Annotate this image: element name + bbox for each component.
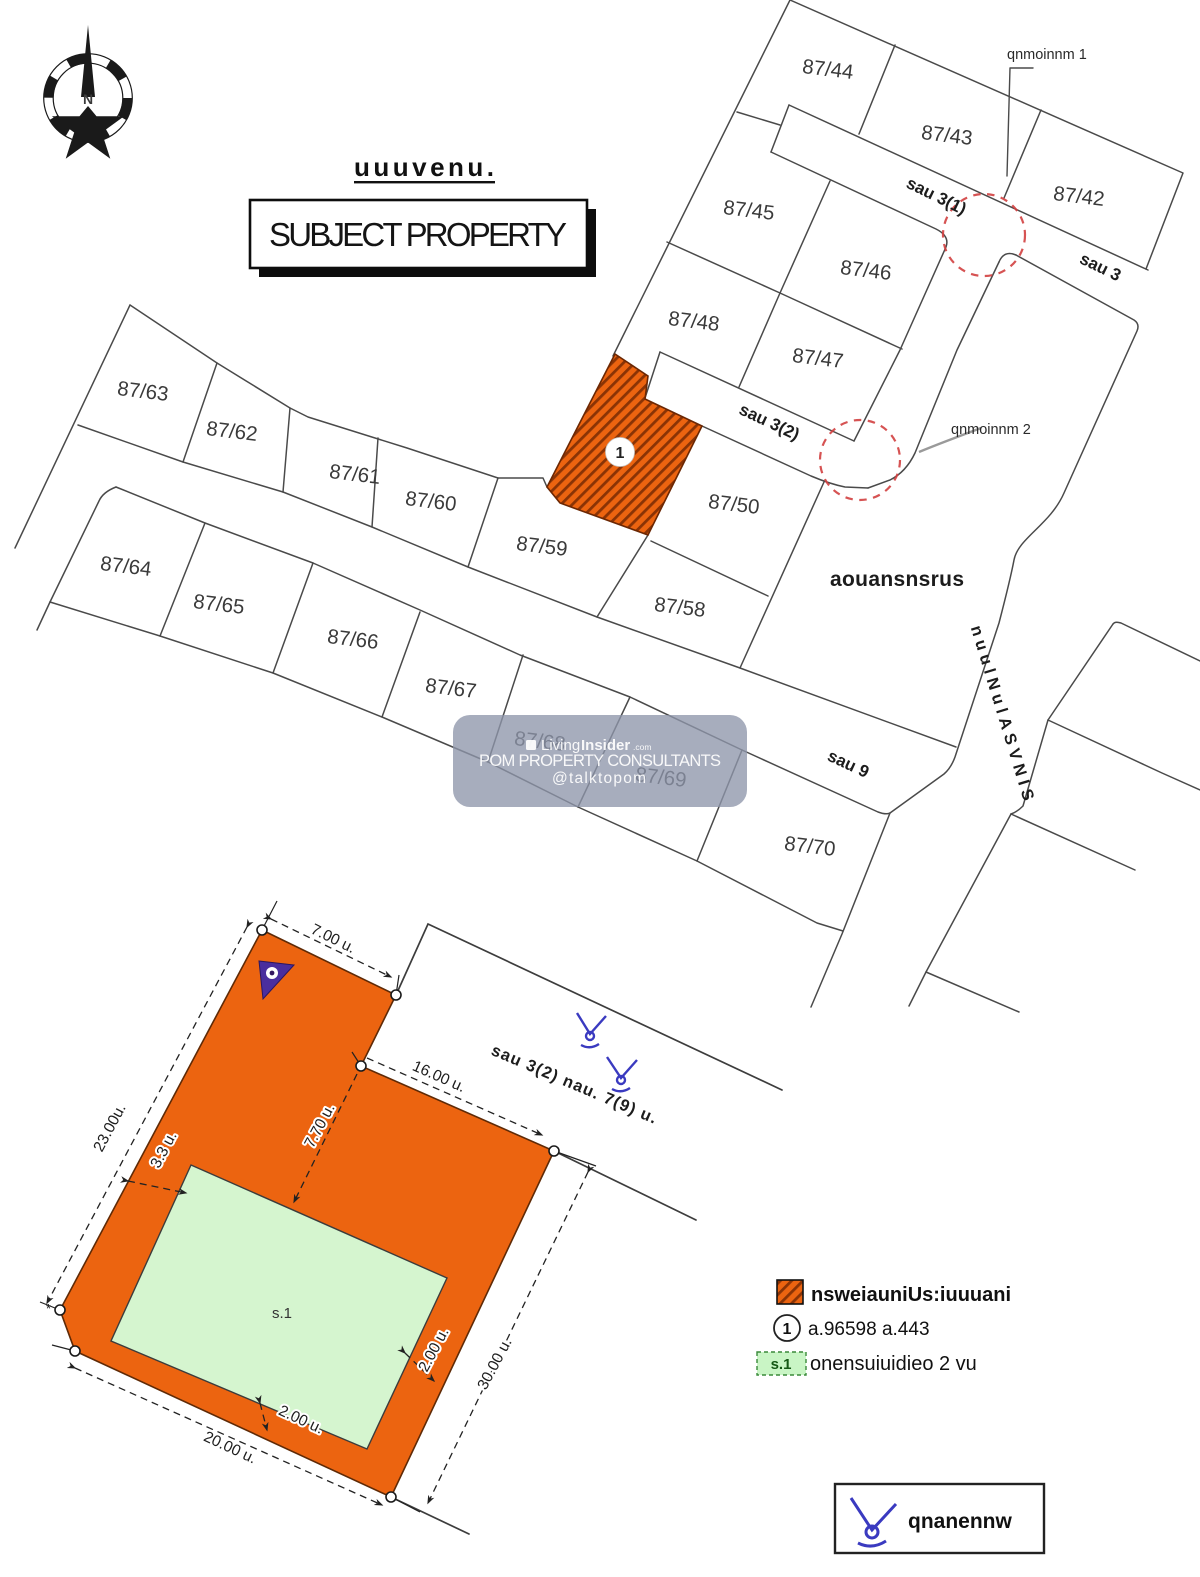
svg-text:87/61: 87/61 bbox=[328, 460, 382, 489]
svg-text:s.1: s.1 bbox=[771, 1356, 792, 1373]
svg-text:*: * bbox=[46, 1301, 51, 1316]
svg-text:87/48: 87/48 bbox=[667, 307, 721, 336]
svg-text:30.00 u.: 30.00 u. bbox=[474, 1335, 515, 1392]
svg-text:87/65: 87/65 bbox=[192, 590, 246, 619]
svg-text:87/66: 87/66 bbox=[326, 625, 380, 654]
svg-text:a.96598 a.443: a.96598 a.443 bbox=[808, 1319, 930, 1340]
svg-text:onensuiuidieo 2 vu: onensuiuidieo 2 vu bbox=[810, 1353, 977, 1375]
svg-text:1: 1 bbox=[616, 445, 625, 462]
svg-text:qnmoinnm 2: qnmoinnm 2 bbox=[951, 422, 1031, 438]
svg-text:1: 1 bbox=[783, 1321, 792, 1338]
svg-text:sau 3(2) nau. 7(9) u.: sau 3(2) nau. 7(9) u. bbox=[489, 1041, 660, 1127]
svg-text:87/58: 87/58 bbox=[653, 593, 707, 622]
svg-text:uuuvenu.: uuuvenu. bbox=[354, 152, 494, 182]
svg-text:POM PROPERTY CONSULTANTS: POM PROPERTY CONSULTANTS bbox=[479, 752, 721, 770]
svg-text:sau 3(2): sau 3(2) bbox=[736, 400, 802, 444]
svg-text:87/64: 87/64 bbox=[99, 552, 153, 581]
svg-text:20.00 u.: 20.00 u. bbox=[201, 1428, 259, 1467]
svg-text:s.1: s.1 bbox=[272, 1305, 292, 1322]
svg-text:87/60: 87/60 bbox=[404, 487, 458, 516]
svg-text:sau 9: sau 9 bbox=[825, 746, 872, 782]
svg-text:87/43: 87/43 bbox=[920, 121, 974, 150]
svg-text:SUBJECT PROPERTY: SUBJECT PROPERTY bbox=[269, 216, 567, 253]
svg-text:7.00 u.: 7.00 u. bbox=[308, 921, 358, 957]
svg-text:87/50: 87/50 bbox=[707, 490, 761, 519]
svg-text:nsweiauniUs:iuuuani: nsweiauniUs:iuuuani bbox=[811, 1284, 1011, 1306]
svg-text:.com: .com bbox=[633, 742, 651, 752]
svg-text:87/45: 87/45 bbox=[722, 196, 776, 225]
svg-text:aouansnsrus: aouansnsrus bbox=[830, 568, 964, 591]
svg-text:87/46: 87/46 bbox=[839, 256, 893, 285]
svg-text:87/59: 87/59 bbox=[515, 532, 569, 561]
svg-text:qnanennw: qnanennw bbox=[908, 1510, 1012, 1533]
svg-text:87/44: 87/44 bbox=[801, 55, 855, 84]
svg-text:N: N bbox=[83, 91, 93, 107]
svg-text:sau 3: sau 3 bbox=[1077, 249, 1124, 285]
svg-text:23.00u.: 23.00u. bbox=[90, 1101, 129, 1155]
svg-text:nuulNulASVNIS: nuulNulASVNIS bbox=[967, 623, 1037, 802]
svg-text:sau 3(1): sau 3(1) bbox=[903, 173, 969, 218]
svg-text:qnmoinnm 1: qnmoinnm 1 bbox=[1007, 47, 1087, 63]
svg-text:87/70: 87/70 bbox=[783, 832, 837, 861]
svg-text:87/62: 87/62 bbox=[205, 417, 259, 446]
svg-text:87/63: 87/63 bbox=[116, 377, 170, 406]
svg-text:87/42: 87/42 bbox=[1052, 182, 1106, 211]
svg-text:87/67: 87/67 bbox=[424, 674, 478, 703]
svg-text:87/47: 87/47 bbox=[791, 344, 845, 373]
